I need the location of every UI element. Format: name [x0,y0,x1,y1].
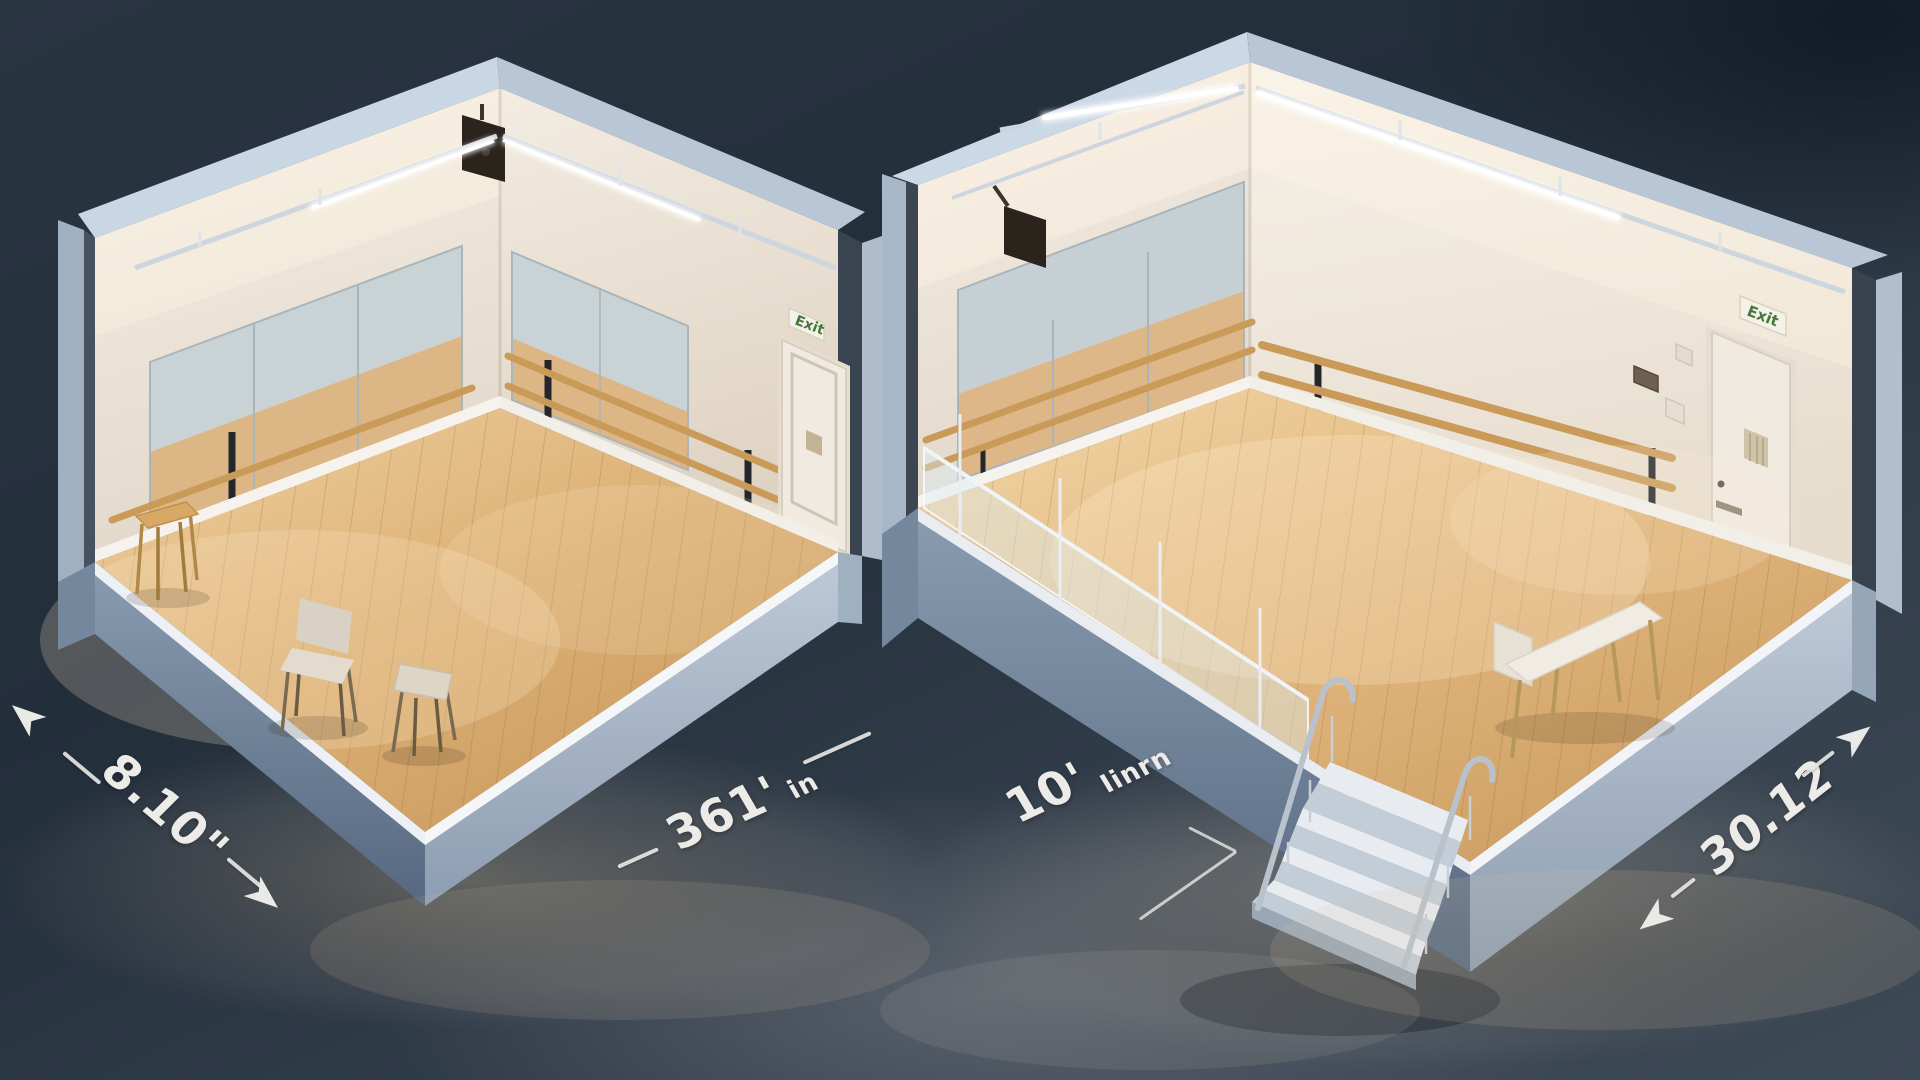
isometric-render: Exit [0,0,1920,1080]
left-room-shell-left-cap [58,220,84,582]
scene: Exit [0,0,1920,1080]
right-room-shell-left-cap [882,174,906,534]
right-room-shell-right-cap [1876,272,1902,614]
left-room-shell-right-cap [862,236,882,560]
